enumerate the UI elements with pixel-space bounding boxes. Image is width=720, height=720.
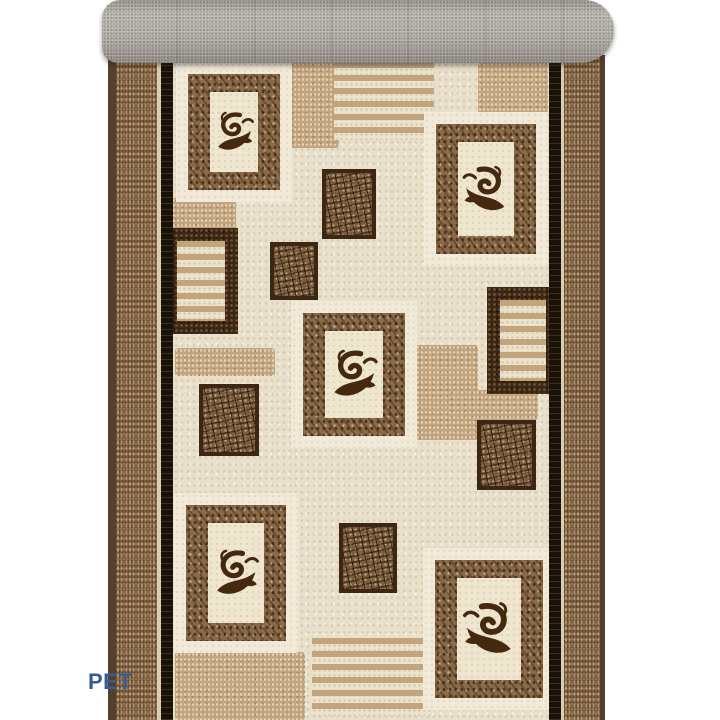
carpet-left-border-band: [116, 55, 157, 720]
crackle-square: [477, 420, 536, 490]
stripe-panel: [177, 241, 225, 321]
scroll-ornament-icon: [460, 146, 512, 232]
ornament-square: [176, 62, 292, 202]
carpet-right-black-line: [549, 55, 561, 720]
crackle-square: [270, 242, 318, 300]
ornament-square: [291, 301, 417, 448]
carpet-left-edge: [108, 55, 116, 720]
watermark-text: PET: [88, 669, 132, 695]
tan-patch: [175, 652, 305, 720]
ornament-inner-frame: [186, 505, 286, 641]
carpet-left-black-line: [161, 55, 173, 720]
ornament-square: [423, 548, 555, 710]
ornament-panel: [457, 578, 521, 680]
tan-patch: [172, 198, 236, 230]
ornament-panel: [208, 523, 264, 623]
ornament-square: [424, 112, 548, 266]
carpet-right-edge: [600, 55, 605, 720]
crackle-square: [322, 169, 376, 239]
ornament-inner-frame: [435, 560, 543, 698]
tan-patch: [478, 62, 548, 114]
scroll-ornament-icon: [212, 95, 256, 169]
ornament-panel: [458, 142, 514, 236]
scroll-ornament-icon: [460, 582, 519, 676]
tan-patch: [289, 62, 339, 148]
stripe-block: [312, 638, 432, 716]
striped-square: [164, 228, 238, 334]
product-photo: PET: [0, 0, 720, 720]
ornament-panel: [210, 92, 258, 172]
ornament-inner-frame: [188, 74, 280, 190]
tan-patch: [448, 390, 538, 420]
stripe-block: [334, 62, 434, 140]
ornament-inner-frame: [436, 124, 536, 254]
stripe-panel: [500, 300, 546, 381]
tan-patch: [175, 348, 275, 376]
crackle-square: [199, 384, 259, 456]
ornament-panel: [325, 331, 383, 418]
crackle-square: [339, 523, 397, 593]
ornament-square: [174, 493, 298, 653]
scroll-ornament-icon: [327, 334, 380, 414]
scroll-ornament-icon: [210, 527, 262, 619]
ornament-inner-frame: [303, 313, 405, 436]
rolled-carpet-top: [102, 0, 614, 63]
carpet-right-border-band: [564, 55, 600, 720]
